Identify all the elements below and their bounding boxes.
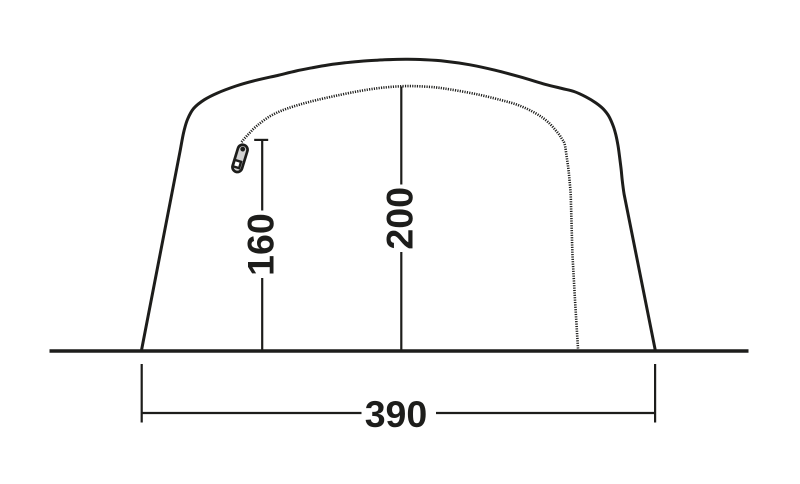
svg-text:390: 390: [365, 393, 428, 435]
svg-text:160: 160: [240, 213, 282, 276]
svg-text:200: 200: [378, 187, 420, 250]
